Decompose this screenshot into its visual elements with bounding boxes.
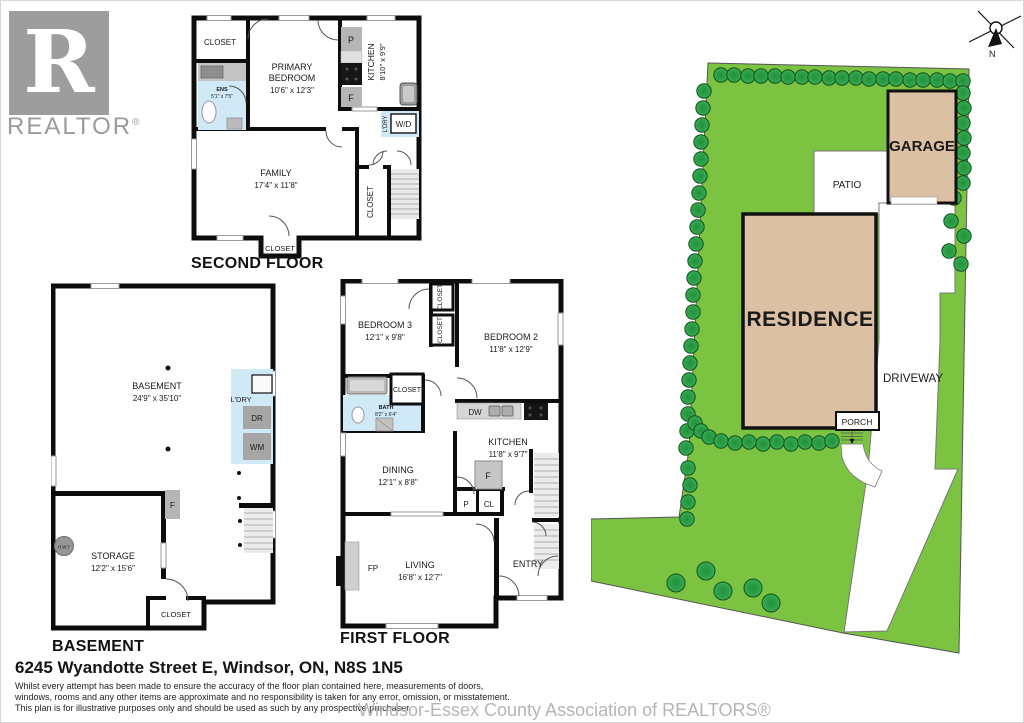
tree <box>694 135 708 149</box>
laundry-sink <box>252 375 272 393</box>
label-closet-bottom: CLOSET <box>265 244 295 253</box>
tree <box>686 305 700 319</box>
label-entry: ENTRY <box>513 559 543 569</box>
tree <box>686 288 700 302</box>
tree <box>812 436 826 450</box>
tree <box>694 152 708 166</box>
tree <box>930 73 944 87</box>
realtor-logo-icon: R <box>9 11 109 115</box>
disclaimer-line-3: This plan is for illustrative purposes o… <box>15 703 411 713</box>
property-address: 6245 Wyandotte Street E, Windsor, ON, N8… <box>15 658 403 678</box>
tree <box>944 214 958 228</box>
label-basement-laundry: L'DRY <box>230 395 251 404</box>
label-kitchen: KITCHEN <box>366 43 376 80</box>
tree <box>957 229 971 243</box>
label-furnace: F <box>170 500 175 510</box>
ens-toilet <box>202 101 216 123</box>
tree <box>835 71 849 85</box>
tree <box>714 68 728 82</box>
label-fireplace: FP <box>368 564 378 573</box>
tree <box>957 101 971 115</box>
realtor-logo-r: R <box>23 20 94 106</box>
stove <box>524 403 548 420</box>
label-ens-dims: 5'1" x 7'5" <box>211 94 233 100</box>
label-dining-dims: 12'1" x 8'8" <box>378 478 418 487</box>
label-kitchen: KITCHEN <box>488 437 528 447</box>
tree <box>954 257 968 271</box>
basement-stairs <box>244 508 273 553</box>
label-bedroom3-dims: 12'1" x 9'8" <box>365 333 405 342</box>
label-washer: WM <box>250 443 265 452</box>
tree <box>808 70 822 84</box>
tree <box>728 436 742 450</box>
first-floor-title: FIRST FLOOR <box>340 630 450 648</box>
label-bedroom3: BEDROOM 3 <box>358 320 412 330</box>
tree <box>697 84 711 98</box>
site-plan: RESIDENCE GARAGE PATIO DRIVEWAY PORCH <box>591 41 1024 656</box>
label-basement: BASEMENT <box>132 381 182 391</box>
tree <box>680 512 694 526</box>
label-living-dims: 16'8" x 12'7" <box>398 573 442 582</box>
realtor-logo-text: REALTOR <box>7 113 132 140</box>
label-closet-tl: CLOSET <box>204 38 236 47</box>
tree <box>679 441 693 455</box>
tree <box>862 72 876 86</box>
label-washer-dryer: W/D <box>396 120 412 129</box>
label-bedroom2-dims: 11'8" x 12'9" <box>489 345 532 354</box>
sink-right <box>502 406 513 416</box>
label-closet-h: CLOSET <box>393 387 422 394</box>
label-primary-1: PRIMARY <box>272 62 313 72</box>
second-floor-stairs <box>391 169 419 219</box>
tree <box>695 118 709 132</box>
floorplan-sheet: R REALTOR® <box>0 0 1024 723</box>
label-pantry: P <box>463 500 468 509</box>
tree <box>795 70 809 84</box>
toilet <box>352 407 364 423</box>
label-closet-right: CLOSET <box>366 186 375 218</box>
label-fridge: F <box>348 93 354 103</box>
realtor-logo-wordmark: REALTOR® <box>7 113 142 141</box>
tree <box>696 101 710 115</box>
label-laundry: L'DRY <box>383 115 389 132</box>
tree <box>687 271 701 285</box>
registered-mark: ® <box>132 117 141 128</box>
stove <box>341 63 362 85</box>
tree <box>903 73 917 87</box>
tree <box>684 339 698 353</box>
tree <box>688 254 702 268</box>
tree <box>781 70 795 84</box>
garage-door <box>891 197 937 204</box>
tree <box>770 435 784 449</box>
tree <box>742 435 756 449</box>
label-closet-v2: CLOSET <box>437 317 444 343</box>
tree <box>784 437 798 451</box>
tree <box>667 574 685 592</box>
tree <box>691 203 705 217</box>
tree <box>681 495 695 509</box>
tree <box>697 562 715 580</box>
basement-title: BASEMENT <box>52 638 144 656</box>
tree <box>689 237 703 251</box>
label-patio: PATIO <box>833 180 862 191</box>
label-family: FAMILY <box>260 168 291 178</box>
tree <box>741 69 755 83</box>
tree <box>768 69 782 83</box>
label-storage-dims: 12'2" x 15'6" <box>91 564 135 573</box>
label-primary-dims: 10'6" x 12'3" <box>270 86 314 95</box>
label-kitchen-dims: 11'8" x 9'7" <box>489 450 528 459</box>
association-watermark: Windsor-Essex County Association of REAL… <box>358 700 771 721</box>
tree <box>956 116 970 130</box>
tree <box>754 69 768 83</box>
second-floor-title: SECOND FLOOR <box>191 255 324 273</box>
label-kitchen-dims: 8'10" x 9'9" <box>378 43 387 80</box>
tree <box>957 161 971 175</box>
tree <box>876 72 890 86</box>
tree <box>849 71 863 85</box>
tree <box>957 131 971 145</box>
label-closet-v1: CLOSET <box>437 284 444 310</box>
label-hwt: H.W.T <box>58 545 71 550</box>
label-driveway: DRIVEWAY <box>883 373 943 385</box>
tree <box>685 322 699 336</box>
label-pantry: P <box>348 35 354 45</box>
sink-left <box>489 406 500 416</box>
tree <box>683 356 697 370</box>
tree <box>727 68 741 82</box>
compass-n-label: N <box>989 49 996 59</box>
ens-fixture <box>227 118 242 129</box>
label-dishwasher: DW <box>468 408 482 417</box>
first-floor-plan: BEDROOM 3 12'1" x 9'8" BEDROOM 2 11'8" x… <box>336 279 571 631</box>
disclaimer-line-1: Whilst every attempt has been made to en… <box>15 681 483 691</box>
ens-sink <box>201 66 223 78</box>
label-bath-dims: 8'2" x 6'4" <box>375 412 397 418</box>
label-storage: STORAGE <box>91 551 135 561</box>
tree <box>681 461 695 475</box>
tree <box>683 478 697 492</box>
second-floor-plan: CLOSET PRIMARY BEDROOM 10'6" x 12'3" ENS… <box>191 15 426 261</box>
tree <box>916 73 930 87</box>
tree <box>956 176 970 190</box>
label-basement-dims: 24'9" x 35'10" <box>133 394 181 403</box>
label-primary-2: BEDROOM <box>269 73 316 83</box>
tree <box>956 86 970 100</box>
chimney-bump <box>336 556 345 586</box>
tree <box>714 582 732 600</box>
tree <box>692 186 706 200</box>
label-living: LIVING <box>405 560 435 570</box>
tree <box>714 434 728 448</box>
label-basement-closet: CLOSET <box>161 610 191 619</box>
tree <box>682 373 696 387</box>
label-closet-abbr: CL <box>484 500 495 509</box>
fireplace-hearth <box>345 542 359 590</box>
tree <box>822 71 836 85</box>
tree <box>889 72 903 86</box>
label-ens: ENS <box>216 87 228 93</box>
tree <box>762 594 780 612</box>
label-bath: BATH <box>379 405 394 411</box>
label-porch: PORCH <box>842 417 873 427</box>
label-dining: DINING <box>382 465 414 475</box>
tree <box>744 579 762 597</box>
label-fridge: F <box>485 471 491 481</box>
label-bedroom2: BEDROOM 2 <box>484 332 538 342</box>
tree <box>956 146 970 160</box>
tree <box>693 169 707 183</box>
first-floor-stairs <box>534 453 559 569</box>
tree <box>690 220 704 234</box>
label-garage: GARAGE <box>889 138 955 155</box>
tree <box>681 390 695 404</box>
basement-plan: BASEMENT 24'9" x 35'10" L'DRY DR WM F H.… <box>51 281 281 637</box>
label-dryer: DR <box>251 414 263 423</box>
tree <box>943 74 957 88</box>
tree <box>798 435 812 449</box>
north-compass-icon: N <box>964 4 1024 59</box>
label-family-dims: 17'4" x 11'8" <box>254 181 297 190</box>
tree <box>756 437 770 451</box>
tree <box>942 244 956 258</box>
label-residence: RESIDENCE <box>746 308 873 331</box>
tree <box>825 434 839 448</box>
